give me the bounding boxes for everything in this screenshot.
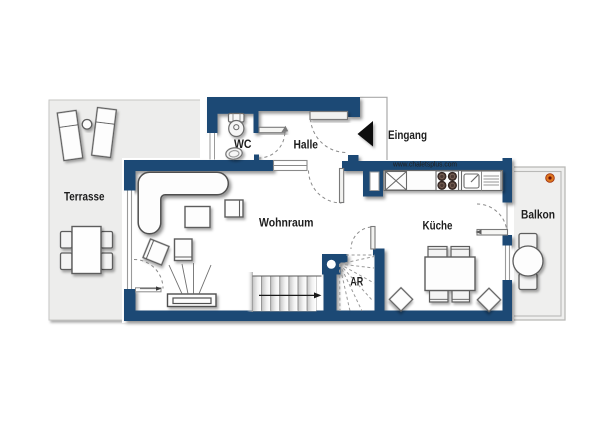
svg-text:Balkon: Balkon bbox=[521, 207, 555, 221]
svg-text:Terrasse: Terrasse bbox=[64, 190, 105, 204]
svg-text:www.chaletsplus.com: www.chaletsplus.com bbox=[392, 160, 457, 169]
svg-text:Halle: Halle bbox=[294, 137, 319, 151]
svg-text:Wohnraum: Wohnraum bbox=[259, 216, 314, 230]
svg-text:Eingang: Eingang bbox=[388, 128, 427, 142]
svg-text:Küche: Küche bbox=[423, 218, 453, 232]
